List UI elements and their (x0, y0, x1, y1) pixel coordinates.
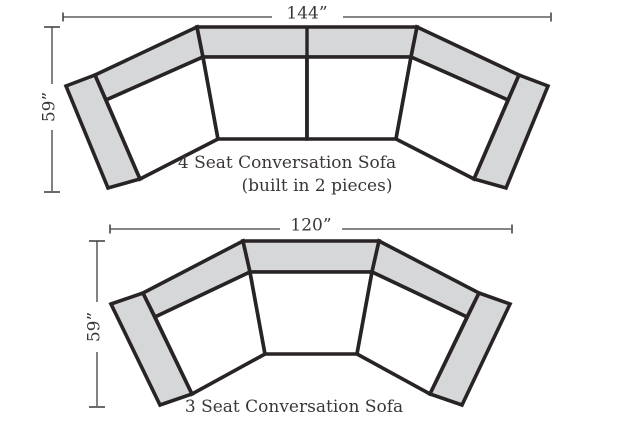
sofa4-caption-line2: (built in 2 pieces) (242, 176, 393, 196)
sofa3-caption: 3 Seat Conversation Sofa (185, 397, 403, 417)
sofa3-caption-line1: 3 Seat Conversation Sofa (185, 397, 403, 417)
sofa4-caption-line1: 4 Seat Conversation Sofa (178, 153, 396, 173)
sofa3-center-back-cushion (243, 241, 379, 272)
sofa4-width-label: 144” (286, 4, 327, 24)
sofa3-height-label: 59” (85, 312, 105, 342)
sofa4-height-label: 59” (40, 92, 60, 122)
diagram-canvas: 144” 59” (0, 0, 629, 434)
sofa4-center-left-seat-cushion (203, 57, 307, 139)
sofa-3-seat-diagram: 120” 59” 3 (85, 216, 513, 418)
sofa3-body (111, 241, 510, 405)
sofa-dimension-diagram-page: 144” 59” (0, 0, 629, 434)
sofa4-height-dimension-line: 59” (40, 27, 61, 192)
sofa4-center-right-seat-cushion (307, 57, 411, 139)
sofa3-center-seat-cushion (250, 272, 372, 354)
sofa3-width-dimension-line: 120” (110, 216, 512, 236)
sofa4-caption: 4 Seat Conversation Sofa (built in 2 pie… (178, 153, 396, 196)
sofa3-height-dimension-line: 59” (85, 241, 106, 407)
sofa4-width-dimension-line: 144” (63, 4, 551, 24)
sofa-4-seat-diagram: 144” 59” (40, 4, 552, 197)
sofa3-width-label: 120” (290, 216, 331, 236)
